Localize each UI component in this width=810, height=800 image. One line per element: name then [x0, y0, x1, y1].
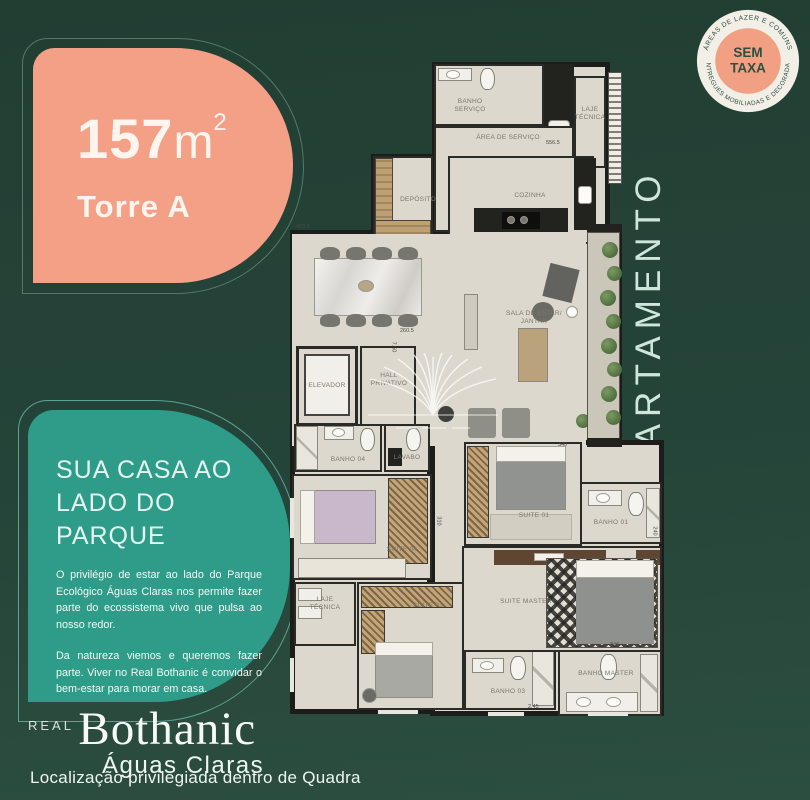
tower-name: Torre A — [77, 189, 293, 225]
room-label-banho-master: BANHO MASTER — [570, 670, 642, 678]
dimension-label: 340 — [558, 442, 567, 448]
info-card-paragraph-2: Da natureza viemos e queremos fazer part… — [56, 648, 262, 698]
cathedral-watermark — [358, 345, 508, 445]
suite03-pillows — [375, 642, 433, 656]
balcony-plant — [601, 338, 617, 354]
banho03-toilet — [510, 656, 526, 680]
brand-name: Bothanic — [78, 703, 256, 755]
room-label-suite-03: SUITE 03 — [400, 602, 456, 610]
room-label-deposito: DEPÓSITO — [390, 196, 446, 204]
dimension-label: 423.5 — [296, 224, 310, 230]
cooktop-burner — [507, 216, 515, 224]
banho01-sink — [596, 493, 610, 503]
area-unit: m — [173, 116, 213, 169]
suite04-desk — [298, 558, 406, 578]
suite01-pillows — [496, 446, 566, 462]
room-label-suite-01: SUITE 01 — [506, 512, 562, 520]
dining-chair — [320, 247, 340, 260]
dining-chair — [372, 314, 392, 327]
service-bath-toilet — [480, 68, 495, 90]
room-label-banho-servico: BANHO SERVIÇO — [442, 98, 498, 114]
area-card: 157m2 Torre A — [33, 48, 293, 283]
dining-chair — [346, 314, 366, 327]
dining-chair — [398, 314, 418, 327]
poster: { "colors": { "background_green": "#2443… — [0, 0, 810, 800]
room-label-area-servico: ÁREA DE SERVIÇO — [466, 134, 550, 142]
banho03-shower — [532, 650, 554, 706]
master-pillows — [576, 560, 654, 578]
info-card-title: SUA CASA AO LADO DO PARQUE — [56, 454, 266, 553]
room-label-laje-tecnica-bottom: LAJE TÉCNICA — [303, 596, 347, 612]
window — [588, 712, 628, 716]
banho03-sink — [480, 661, 494, 670]
banho01-toilet — [628, 492, 644, 516]
window — [488, 712, 524, 716]
balcony-plant — [607, 362, 622, 377]
dining-chair — [346, 247, 366, 260]
dimension-label: 346 — [610, 642, 619, 648]
dimension-label: 2.45 — [528, 704, 539, 710]
cooktop-burner — [520, 216, 528, 224]
banho-master-sink — [576, 697, 591, 707]
room-label-banho-04: BANHO 04 — [320, 456, 376, 464]
footer-tagline: Localização privilegiada dentro de Quadr… — [30, 768, 361, 788]
banho04-shower — [296, 426, 318, 470]
banho04-sink — [332, 428, 345, 437]
service-bath-sink — [446, 70, 460, 79]
balcony-bottom-wall — [587, 438, 622, 447]
badge-line1: SEM — [733, 45, 762, 60]
no-fee-badge: ÁREAS DE LAZER E COMUNS ENTREGUES MOBILI… — [695, 8, 801, 114]
room-label-suite-master: SUITE MASTER — [492, 598, 560, 606]
brand-prefix: REAL — [28, 718, 74, 733]
room-label-laje-tecnica-top: LAJE TÉCNICA — [572, 106, 608, 122]
suite03-chair — [362, 688, 377, 703]
info-card: SUA CASA AO LADO DO PARQUE O privilégio … — [28, 410, 290, 702]
room-label-banho-03: BANHO 03 — [480, 688, 536, 696]
dimension-label: 260.5 — [400, 328, 414, 334]
tv-bench — [464, 294, 478, 350]
area-value: 157 — [77, 107, 173, 170]
coffee-table — [518, 328, 548, 382]
balcony-plant — [606, 314, 621, 329]
dimension-label: 240 — [652, 526, 658, 535]
room-label-cozinha: COZINHA — [498, 192, 562, 200]
area-size: 157m2 — [77, 106, 293, 171]
balcony-plant — [601, 386, 617, 402]
balcony-plant — [607, 266, 622, 281]
dining-chair — [398, 247, 418, 260]
suite04-pillows — [300, 490, 315, 544]
balcony-plant — [600, 290, 616, 306]
room-label-lavabo: LAVABO — [382, 454, 432, 462]
room-label-elevador: ELEVADOR — [300, 382, 354, 390]
dining-chair — [372, 247, 392, 260]
banho-master-shower — [640, 654, 658, 712]
room-label-sala: SALA DE ESTAR/ JANTAR — [496, 310, 572, 326]
dining-chair — [320, 314, 340, 327]
room-label-banho-01: BANHO 01 — [581, 519, 641, 527]
window — [290, 658, 294, 692]
area-superscript: 2 — [213, 109, 226, 136]
room-label-suite-04: SUITE 04 — [374, 546, 430, 554]
suite01-wardrobe — [467, 446, 489, 538]
info-card-paragraph-1: O privilégio de estar ao lado do Parque … — [56, 567, 262, 634]
badge-line2: TAXA — [730, 61, 766, 76]
balcony-plant — [602, 242, 618, 258]
table-centerpiece — [358, 280, 374, 292]
dimension-label: 556.5 — [546, 140, 560, 146]
banho-master-sink — [606, 697, 621, 707]
facade-louver-strip — [608, 72, 622, 184]
dimension-label: 310 — [436, 516, 442, 525]
window — [290, 498, 294, 538]
balcony-plant — [606, 410, 621, 425]
kitchen-side-sink — [578, 186, 592, 204]
window — [378, 710, 418, 714]
